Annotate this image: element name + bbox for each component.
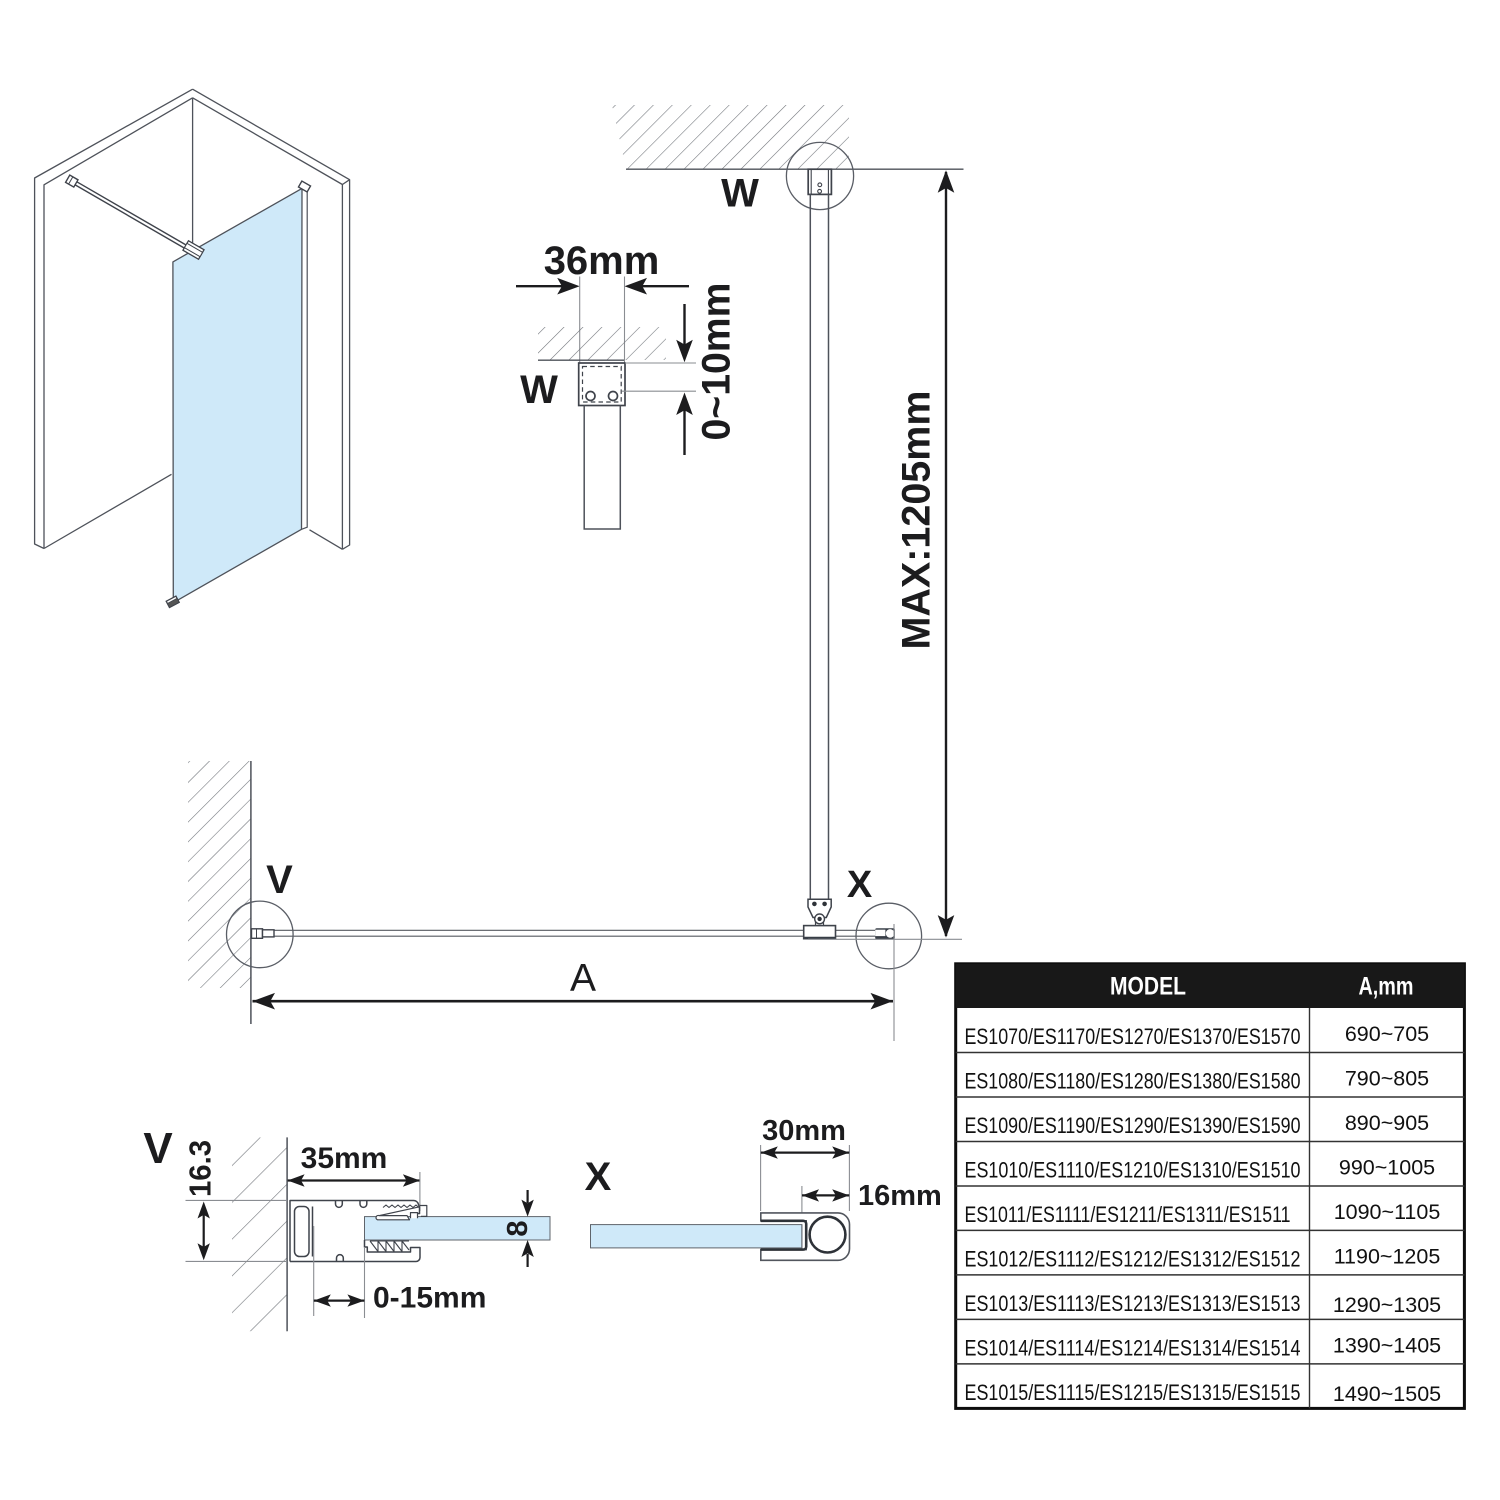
svg-text:V: V [143,1124,173,1173]
svg-text:ES1013/ES1113/ES1213/ES1313/ES: ES1013/ES1113/ES1213/ES1313/ES1513 [965,1291,1301,1316]
svg-text:8: 8 [502,1220,534,1236]
svg-text:35mm: 35mm [301,1142,388,1175]
svg-text:ES1080/ES1180/ES1280/ES1380/ES: ES1080/ES1180/ES1280/ES1380/ES1580 [965,1069,1301,1094]
svg-text:ES1012/ES1112/ES1212/ES1312/ES: ES1012/ES1112/ES1212/ES1312/ES1512 [965,1246,1301,1271]
svg-text:890~905: 890~905 [1345,1111,1429,1135]
svg-text:MAX:1205mm: MAX:1205mm [895,391,939,650]
svg-text:MODEL: MODEL [1110,973,1186,1001]
svg-text:0-15mm: 0-15mm [373,1282,486,1315]
svg-text:ES1011/ES1111/ES1211/ES1311/ES: ES1011/ES1111/ES1211/ES1311/ES1511 [965,1202,1291,1227]
svg-text:A,mm: A,mm [1359,973,1414,1001]
svg-text:X: X [585,1155,612,1199]
svg-text:W: W [520,368,558,412]
svg-text:ES1014/ES1114/ES1214/ES1314/ES: ES1014/ES1114/ES1214/ES1314/ES1514 [965,1335,1301,1360]
svg-text:ES1015/ES1115/ES1215/ES1315/ES: ES1015/ES1115/ES1215/ES1315/ES1515 [965,1380,1301,1405]
svg-text:790~805: 790~805 [1345,1067,1429,1091]
svg-text:1490~1505: 1490~1505 [1333,1382,1441,1406]
svg-text:V: V [266,858,293,902]
svg-text:A: A [570,957,596,1000]
svg-text:1290~1305: 1290~1305 [1333,1293,1441,1317]
svg-text:690~705: 690~705 [1345,1022,1429,1046]
svg-text:16mm: 16mm [858,1180,942,1212]
svg-text:ES1010/ES1110/ES1210/ES1310/ES: ES1010/ES1110/ES1210/ES1310/ES1510 [965,1158,1301,1183]
svg-text:36mm: 36mm [544,239,660,283]
svg-text:16.3: 16.3 [183,1140,218,1197]
svg-text:ES1090/ES1190/ES1290/ES1390/ES: ES1090/ES1190/ES1290/ES1390/ES1590 [965,1113,1301,1138]
svg-text:W: W [721,172,759,216]
svg-text:990~1005: 990~1005 [1339,1156,1435,1180]
svg-text:30mm: 30mm [762,1115,846,1147]
svg-text:X: X [847,864,873,906]
svg-text:1190~1205: 1190~1205 [1334,1244,1441,1268]
svg-text:1390~1405: 1390~1405 [1333,1333,1441,1357]
svg-text:ES1070/ES1170/ES1270/ES1370/ES: ES1070/ES1170/ES1270/ES1370/ES1570 [965,1024,1301,1049]
svg-text:1090~1105: 1090~1105 [1334,1200,1441,1224]
svg-text:0~10mm: 0~10mm [695,283,739,441]
